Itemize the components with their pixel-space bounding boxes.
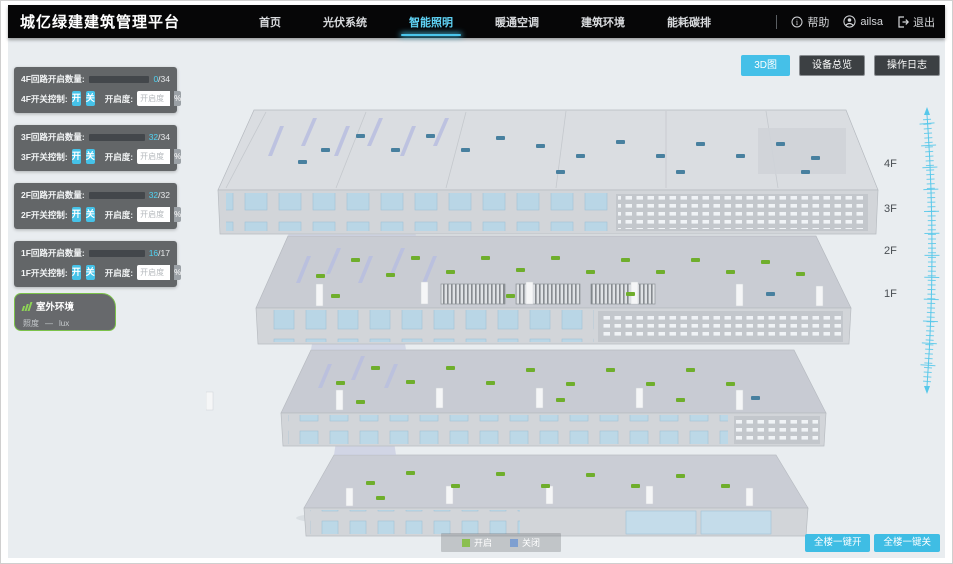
floor-label-1f[interactable]: 1F — [884, 288, 897, 300]
floor-label-3f[interactable]: 3F — [884, 203, 897, 215]
circuit-progress-bar — [89, 250, 145, 257]
circuit-count-label: 4F回路开启数量: — [21, 73, 85, 85]
dimming-input[interactable] — [137, 91, 170, 106]
switch-control-label: 4F开关控制: — [21, 93, 68, 105]
circuit-count-label: 3F回路开启数量: — [21, 131, 85, 143]
building-3d-model — [206, 98, 896, 538]
circuit-count-value: 0/34 — [153, 74, 170, 84]
nav-hvac[interactable]: 暖通空调 — [495, 5, 539, 38]
circuit-count-value: 16/17 — [149, 248, 170, 258]
legend-off-swatch — [510, 539, 518, 547]
nav-energy-carbon[interactable]: 能耗碳排 — [667, 5, 711, 38]
switch-off-button[interactable]: 关 — [86, 149, 95, 164]
view-toolbar: 3D图 设备总览 操作日志 — [741, 55, 940, 76]
legend-on-label: 开启 — [474, 536, 492, 549]
switch-off-button[interactable]: 关 — [86, 265, 95, 280]
percent-button[interactable]: % — [174, 207, 181, 222]
floor-label-4f[interactable]: 4F — [884, 158, 897, 170]
nav-building-env[interactable]: 建筑环境 — [581, 5, 625, 38]
help-label: 帮助 — [807, 14, 829, 30]
switch-control-label: 3F开关控制: — [21, 151, 68, 163]
circuit-progress-bar — [89, 76, 150, 83]
outdoor-panel-title: 室外环境 — [36, 299, 74, 313]
dimming-label: 开启度: — [105, 151, 133, 163]
nav-smart-lighting[interactable]: 智能照明 — [409, 5, 453, 38]
main-nav: 首页 光伏系统 智能照明 暖通空调 建筑环境 能耗碳排 — [238, 5, 732, 38]
percent-button[interactable]: % — [174, 265, 181, 280]
switch-on-button[interactable]: 开 — [72, 207, 81, 222]
switch-on-button[interactable]: 开 — [72, 149, 81, 164]
logout-label: 退出 — [913, 14, 935, 30]
switch-on-button[interactable]: 开 — [72, 265, 81, 280]
main-canvas: 3D图 设备总览 操作日志 4F回路开启数量: 0/34 4F开关控制: 开 关… — [8, 38, 945, 558]
dimming-label: 开启度: — [105, 93, 133, 105]
app: 城亿绿建建筑管理平台 首页 光伏系统 智能照明 暖通空调 建筑环境 能耗碳排 i… — [8, 5, 945, 558]
dimming-input[interactable] — [137, 149, 170, 164]
illuminance-label: 照度 — [23, 318, 39, 329]
header-divider — [776, 15, 777, 29]
circuit-count-label: 1F回路开启数量: — [21, 247, 85, 259]
device-overview-button[interactable]: 设备总览 — [799, 55, 865, 76]
operation-log-button[interactable]: 操作日志 — [874, 55, 940, 76]
view-3d-button[interactable]: 3D图 — [741, 55, 790, 76]
nav-pv-system[interactable]: 光伏系统 — [323, 5, 367, 38]
floor-scale-slider[interactable] — [913, 103, 945, 398]
nav-home[interactable]: 首页 — [259, 5, 281, 38]
switch-off-button[interactable]: 关 — [86, 91, 95, 106]
legend-off: 关闭 — [510, 536, 540, 549]
switch-on-button[interactable]: 开 — [72, 91, 81, 106]
all-floors-on-button[interactable]: 全楼一键开 — [805, 534, 871, 552]
status-legend: 开启 关闭 — [441, 533, 561, 552]
floor-4f-model — [218, 98, 878, 234]
environment-bars-icon — [22, 302, 33, 311]
circuit-progress-bar — [89, 134, 145, 141]
help-icon: i — [791, 16, 803, 28]
illuminance-unit: lux — [59, 319, 69, 328]
logout-button[interactable]: 退出 — [897, 14, 935, 30]
app-title: 城亿绿建建筑管理平台 — [20, 11, 180, 32]
logout-icon — [897, 16, 909, 28]
bulk-actions: 全楼一键开 全楼一键关 — [805, 534, 940, 552]
circuit-count-value: 32/34 — [149, 132, 170, 142]
switch-off-button[interactable]: 关 — [86, 207, 95, 222]
user-avatar-icon — [843, 15, 856, 28]
building-3d-view[interactable] — [206, 98, 896, 538]
percent-button[interactable]: % — [174, 91, 181, 106]
floor-panel-4f: 4F回路开启数量: 0/34 4F开关控制: 开 关 开启度: % — [14, 67, 177, 113]
header-right: i 帮助 ailsa 退出 — [776, 14, 935, 30]
outdoor-environment-panel: 室外环境 照度 — lux — [14, 293, 116, 331]
floor-label-2f[interactable]: 2F — [884, 245, 897, 257]
circuit-count-label: 2F回路开启数量: — [21, 189, 85, 201]
circuit-progress-bar — [89, 192, 145, 199]
username: ailsa — [860, 16, 883, 28]
help-button[interactable]: i 帮助 — [791, 14, 829, 30]
top-header: 城亿绿建建筑管理平台 首页 光伏系统 智能照明 暖通空调 建筑环境 能耗碳排 i… — [8, 5, 945, 38]
dimming-input[interactable] — [137, 207, 170, 222]
legend-on-swatch — [462, 539, 470, 547]
switch-control-label: 1F开关控制: — [21, 267, 68, 279]
percent-button[interactable]: % — [174, 149, 181, 164]
switch-control-label: 2F开关控制: — [21, 209, 68, 221]
svg-text:i: i — [796, 17, 799, 26]
illuminance-value: — — [45, 319, 53, 328]
legend-off-label: 关闭 — [522, 536, 540, 549]
circuit-count-value: 32/32 — [149, 190, 170, 200]
floor-panel-1f: 1F回路开启数量: 16/17 1F开关控制: 开 关 开启度: % — [14, 241, 177, 287]
dimming-input[interactable] — [137, 265, 170, 280]
dimming-label: 开启度: — [105, 267, 133, 279]
floor-panel-2f: 2F回路开启数量: 32/32 2F开关控制: 开 关 开启度: % — [14, 183, 177, 229]
dimming-label: 开启度: — [105, 209, 133, 221]
floor-panel-3f: 3F回路开启数量: 32/34 3F开关控制: 开 关 开启度: % — [14, 125, 177, 171]
scale-ruler-icon — [913, 103, 945, 398]
user-menu[interactable]: ailsa — [843, 15, 883, 28]
legend-on: 开启 — [462, 536, 492, 549]
all-floors-off-button[interactable]: 全楼一键关 — [874, 534, 940, 552]
